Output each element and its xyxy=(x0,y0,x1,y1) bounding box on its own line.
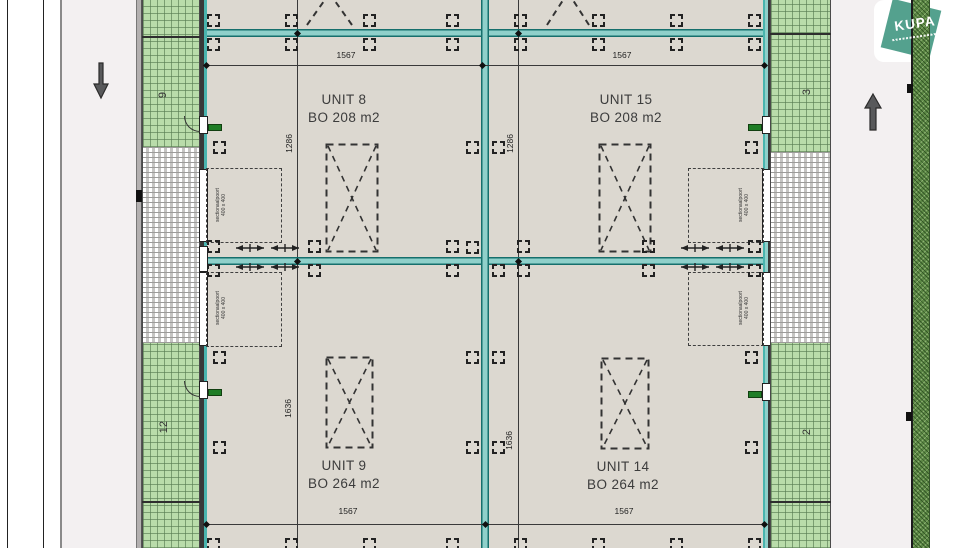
dim-depth-lower: 1636 xyxy=(503,424,514,456)
column-marker xyxy=(642,264,655,277)
column-marker xyxy=(207,264,220,277)
column-marker xyxy=(748,38,761,51)
skylight-box-partial xyxy=(305,0,354,26)
grass-division xyxy=(142,501,200,503)
column-marker xyxy=(514,14,527,27)
column-marker xyxy=(670,38,683,51)
column-marker xyxy=(213,351,226,364)
column-marker xyxy=(207,538,220,548)
column-marker xyxy=(642,240,655,253)
dim-depth-upper: 1286 xyxy=(504,128,515,158)
door-opening-arrows xyxy=(678,243,748,253)
column-marker xyxy=(748,264,761,277)
column-marker xyxy=(466,441,479,454)
column-marker xyxy=(745,351,758,364)
door-panel xyxy=(748,124,762,131)
column-marker xyxy=(466,241,479,254)
skylight-box xyxy=(598,143,652,253)
column-marker xyxy=(745,441,758,454)
grass-left-bottom xyxy=(142,343,200,548)
sectional-door-zone xyxy=(688,272,764,346)
unit-name: UNIT 9 xyxy=(279,457,409,475)
skylight-box-partial xyxy=(545,0,591,26)
grass-division xyxy=(770,501,831,503)
column-marker xyxy=(514,38,527,51)
column-marker xyxy=(670,538,683,548)
column-marker xyxy=(207,240,220,253)
column-marker xyxy=(446,264,459,277)
unit-area: BO 208 m2 xyxy=(279,109,409,127)
skylight-box xyxy=(600,357,650,450)
lot-number: 3 xyxy=(799,80,815,104)
door-panel xyxy=(748,391,762,398)
column-marker xyxy=(285,14,298,27)
column-marker xyxy=(446,38,459,51)
column-marker xyxy=(308,264,321,277)
column-marker xyxy=(492,441,505,454)
door-opening-arrows xyxy=(233,262,303,272)
column-marker xyxy=(670,14,683,27)
column-marker xyxy=(748,240,761,253)
direction-arrow-down-icon xyxy=(92,62,110,100)
dim-width: 1567 xyxy=(318,506,378,516)
column-marker xyxy=(592,14,605,27)
dim-depth-upper: 1286 xyxy=(283,128,294,158)
column-marker xyxy=(363,38,376,51)
sectional-door-label: sectionaalpoort400 x 400 xyxy=(215,278,227,338)
floor-plan-canvas: sectionaalpoort400 x 400 sectionaalpoort… xyxy=(0,0,960,548)
unit-label-15: UNIT 15 BO 208 m2 xyxy=(561,91,691,127)
lot-number: 9 xyxy=(155,83,171,107)
unit-label-9: UNIT 9 BO 264 m2 xyxy=(279,457,409,493)
hedge-marker xyxy=(906,412,912,421)
column-marker xyxy=(213,441,226,454)
door-opening xyxy=(199,381,208,399)
unit-label-8: UNIT 8 BO 208 m2 xyxy=(279,91,409,127)
column-marker xyxy=(446,240,459,253)
unit-area: BO 208 m2 xyxy=(561,109,691,127)
column-marker xyxy=(466,351,479,364)
grass-division xyxy=(770,33,831,35)
column-marker xyxy=(592,38,605,51)
column-marker xyxy=(492,351,505,364)
door-panel xyxy=(208,389,222,396)
unit-name: UNIT 8 xyxy=(279,91,409,109)
road-right xyxy=(831,0,911,548)
sectional-door-label: sectionaalpoort400 x 400 xyxy=(738,175,750,235)
wall-center xyxy=(481,0,489,548)
hedge-strip xyxy=(911,0,930,548)
column-marker xyxy=(592,538,605,548)
unit-area: BO 264 m2 xyxy=(558,476,688,494)
sectional-door-label: sectionaalpoort400 x 400 xyxy=(215,175,227,235)
column-marker xyxy=(514,538,527,548)
unit-label-14: UNIT 14 BO 264 m2 xyxy=(558,458,688,494)
column-marker xyxy=(517,240,530,253)
column-marker xyxy=(745,141,758,154)
column-marker xyxy=(492,141,505,154)
unit-name: UNIT 14 xyxy=(558,458,688,476)
unit-name: UNIT 15 xyxy=(561,91,691,109)
column-marker xyxy=(207,14,220,27)
column-marker xyxy=(492,264,505,277)
lot-number: 2 xyxy=(799,420,815,444)
grass-division xyxy=(142,36,200,38)
column-marker xyxy=(207,38,220,51)
margin-line xyxy=(7,0,8,548)
door-opening-arrows xyxy=(233,243,303,253)
column-marker xyxy=(213,141,226,154)
column-marker xyxy=(285,538,298,548)
dim-width: 1567 xyxy=(594,506,654,516)
lot-number: 12 xyxy=(156,413,172,441)
column-marker xyxy=(363,14,376,27)
column-marker xyxy=(466,141,479,154)
sectional-door-zone xyxy=(688,168,764,243)
unit-area: BO 264 m2 xyxy=(279,475,409,493)
door-opening xyxy=(199,116,208,134)
margin-line xyxy=(43,0,44,548)
paving-right xyxy=(770,152,831,343)
column-marker xyxy=(517,264,530,277)
column-marker xyxy=(285,38,298,51)
grass-right-bottom xyxy=(770,343,831,548)
sectional-door-label: sectionaalpoort400 x 400 xyxy=(738,278,750,338)
dim-width: 1567 xyxy=(316,50,376,60)
column-marker xyxy=(446,538,459,548)
column-marker xyxy=(363,538,376,548)
skylight-box xyxy=(325,356,374,449)
column-marker xyxy=(748,14,761,27)
skylight-box xyxy=(325,143,379,253)
column-marker xyxy=(748,538,761,548)
door-opening-arrows xyxy=(678,262,748,272)
grass-right-top xyxy=(770,0,831,152)
hedge-marker xyxy=(907,84,913,93)
dim-depth-lower: 1636 xyxy=(282,392,293,424)
column-marker xyxy=(308,240,321,253)
direction-arrow-up-icon xyxy=(863,92,883,132)
dim-width: 1567 xyxy=(592,50,652,60)
door-panel xyxy=(208,124,222,131)
paving-left xyxy=(142,147,200,343)
column-marker xyxy=(446,14,459,27)
